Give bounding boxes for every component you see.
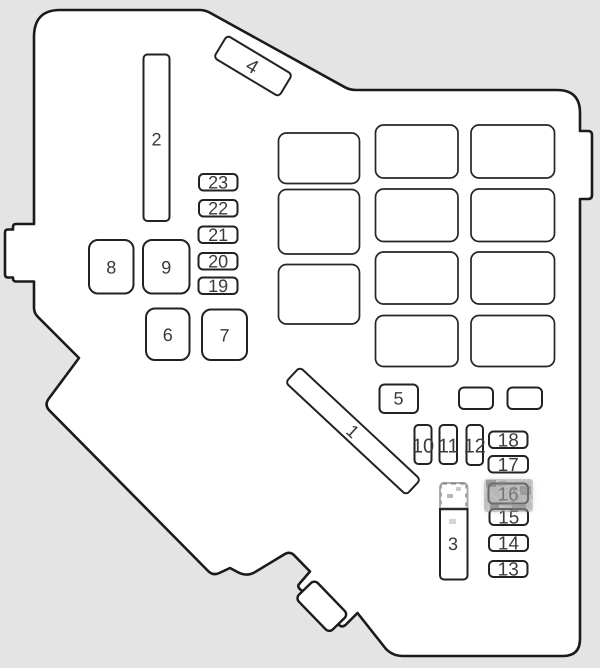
svg-text:9: 9 — [161, 257, 171, 277]
svg-text:22: 22 — [208, 199, 228, 219]
svg-text:5: 5 — [393, 389, 403, 409]
svg-text:19: 19 — [208, 276, 228, 296]
svg-text:8: 8 — [106, 257, 116, 277]
svg-text:21: 21 — [208, 225, 228, 245]
svg-text:18: 18 — [498, 431, 519, 452]
svg-text:11: 11 — [438, 436, 459, 458]
svg-text:2: 2 — [151, 130, 161, 150]
svg-text:14: 14 — [498, 534, 520, 555]
svg-text:3: 3 — [448, 534, 458, 554]
svg-text:6: 6 — [163, 325, 173, 345]
svg-text:13: 13 — [498, 560, 519, 581]
svg-text:20: 20 — [208, 252, 228, 272]
svg-text:10: 10 — [412, 436, 434, 458]
svg-text:7: 7 — [219, 326, 229, 346]
svg-text:23: 23 — [208, 173, 228, 193]
svg-text:17: 17 — [498, 455, 519, 476]
svg-text:12: 12 — [464, 436, 486, 458]
